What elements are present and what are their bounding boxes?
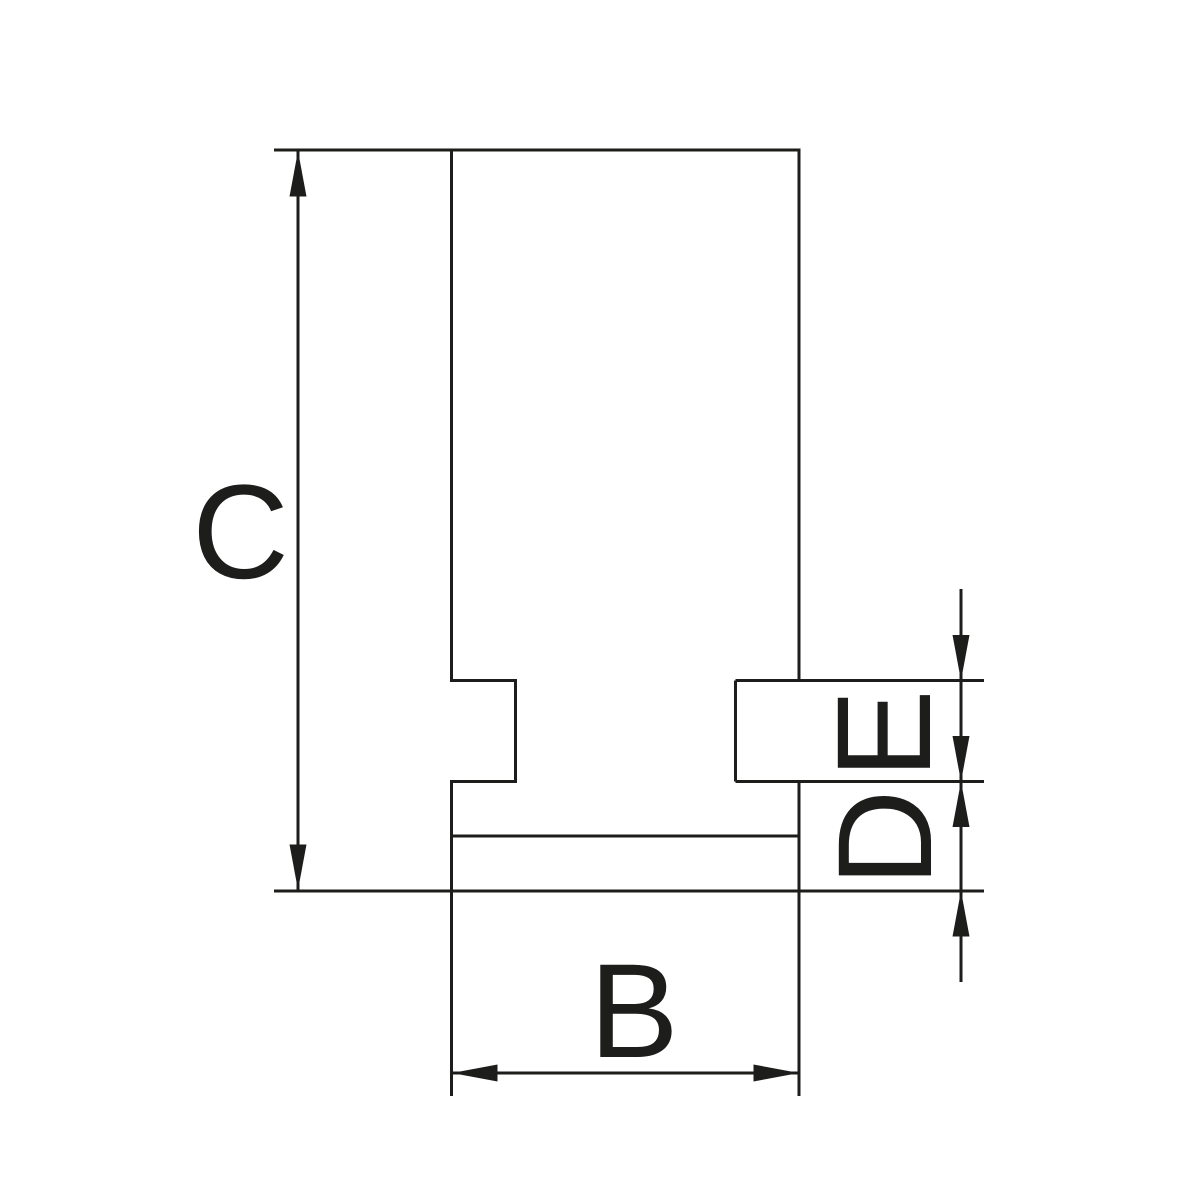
- svg-text:C: C: [192, 458, 289, 607]
- svg-text:B: B: [589, 937, 678, 1086]
- svg-text:E: E: [810, 689, 959, 778]
- svg-text:D: D: [811, 790, 960, 887]
